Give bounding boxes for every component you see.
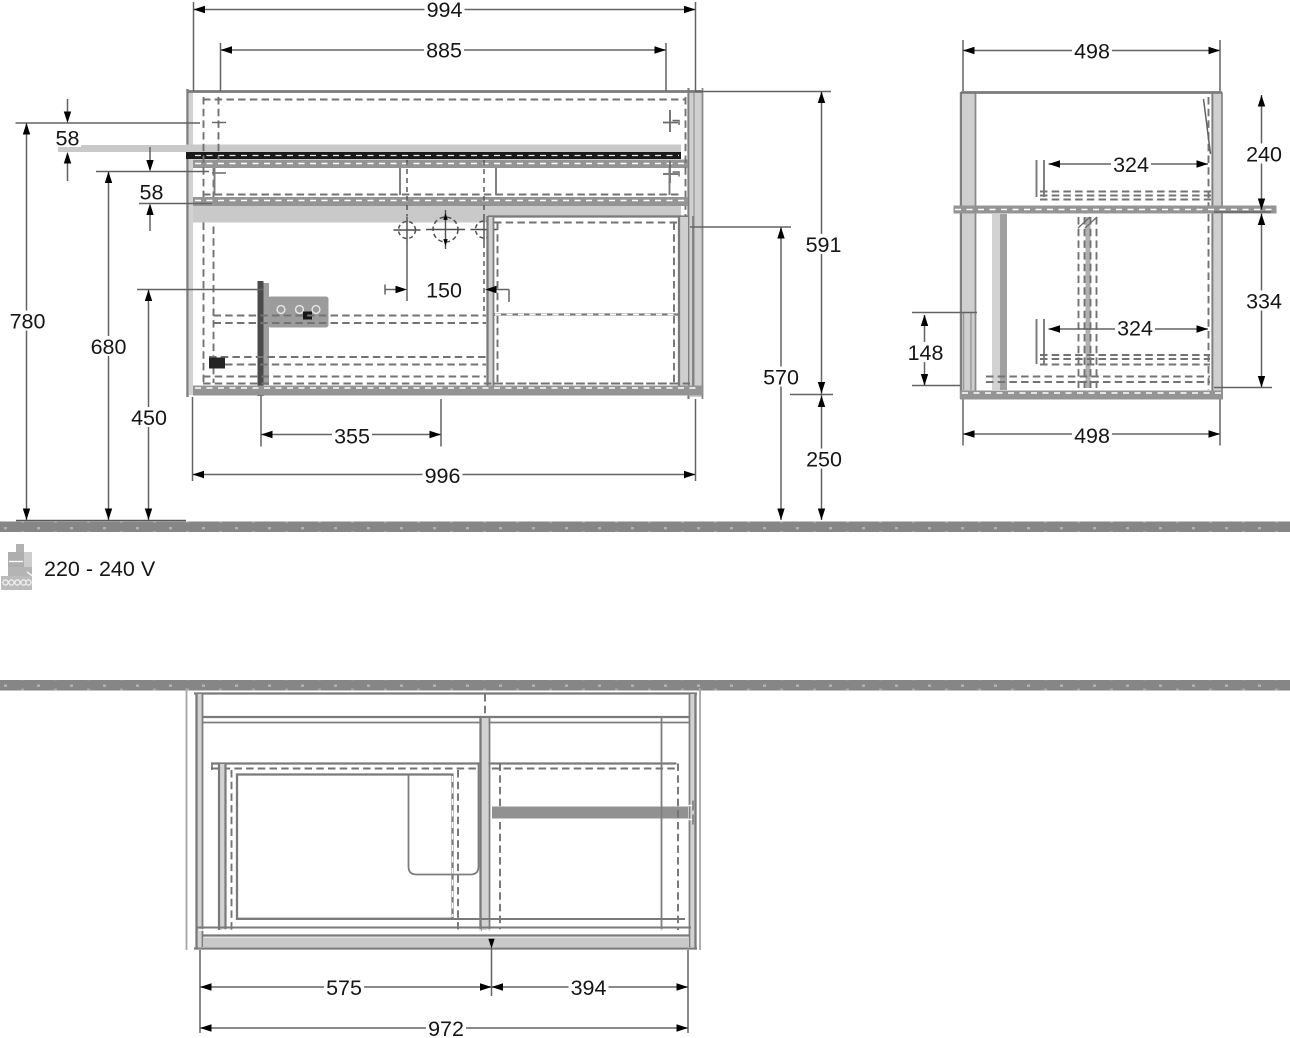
- svg-text:996: 996: [425, 464, 461, 488]
- svg-text:450: 450: [131, 406, 167, 430]
- svg-text:324: 324: [1113, 153, 1149, 177]
- svg-text:780: 780: [10, 310, 46, 334]
- svg-text:575: 575: [326, 976, 362, 1000]
- svg-text:591: 591: [806, 233, 842, 257]
- svg-text:498: 498: [1074, 424, 1110, 448]
- svg-text:148: 148: [908, 341, 944, 365]
- svg-text:498: 498: [1074, 40, 1110, 64]
- svg-text:220 - 240 V: 220 - 240 V: [44, 557, 156, 581]
- svg-text:680: 680: [91, 335, 127, 359]
- svg-text:334: 334: [1246, 290, 1282, 314]
- svg-text:570: 570: [763, 366, 799, 390]
- svg-text:394: 394: [571, 976, 607, 1000]
- svg-text:58: 58: [56, 127, 80, 151]
- svg-text:240: 240: [1246, 143, 1282, 167]
- svg-text:355: 355: [334, 425, 370, 449]
- svg-text:994: 994: [427, 0, 463, 22]
- svg-text:150: 150: [426, 279, 462, 303]
- svg-text:972: 972: [428, 1017, 464, 1038]
- svg-text:58: 58: [140, 181, 164, 205]
- svg-text:885: 885: [426, 39, 462, 63]
- svg-text:324: 324: [1117, 317, 1153, 341]
- svg-text:250: 250: [806, 448, 842, 472]
